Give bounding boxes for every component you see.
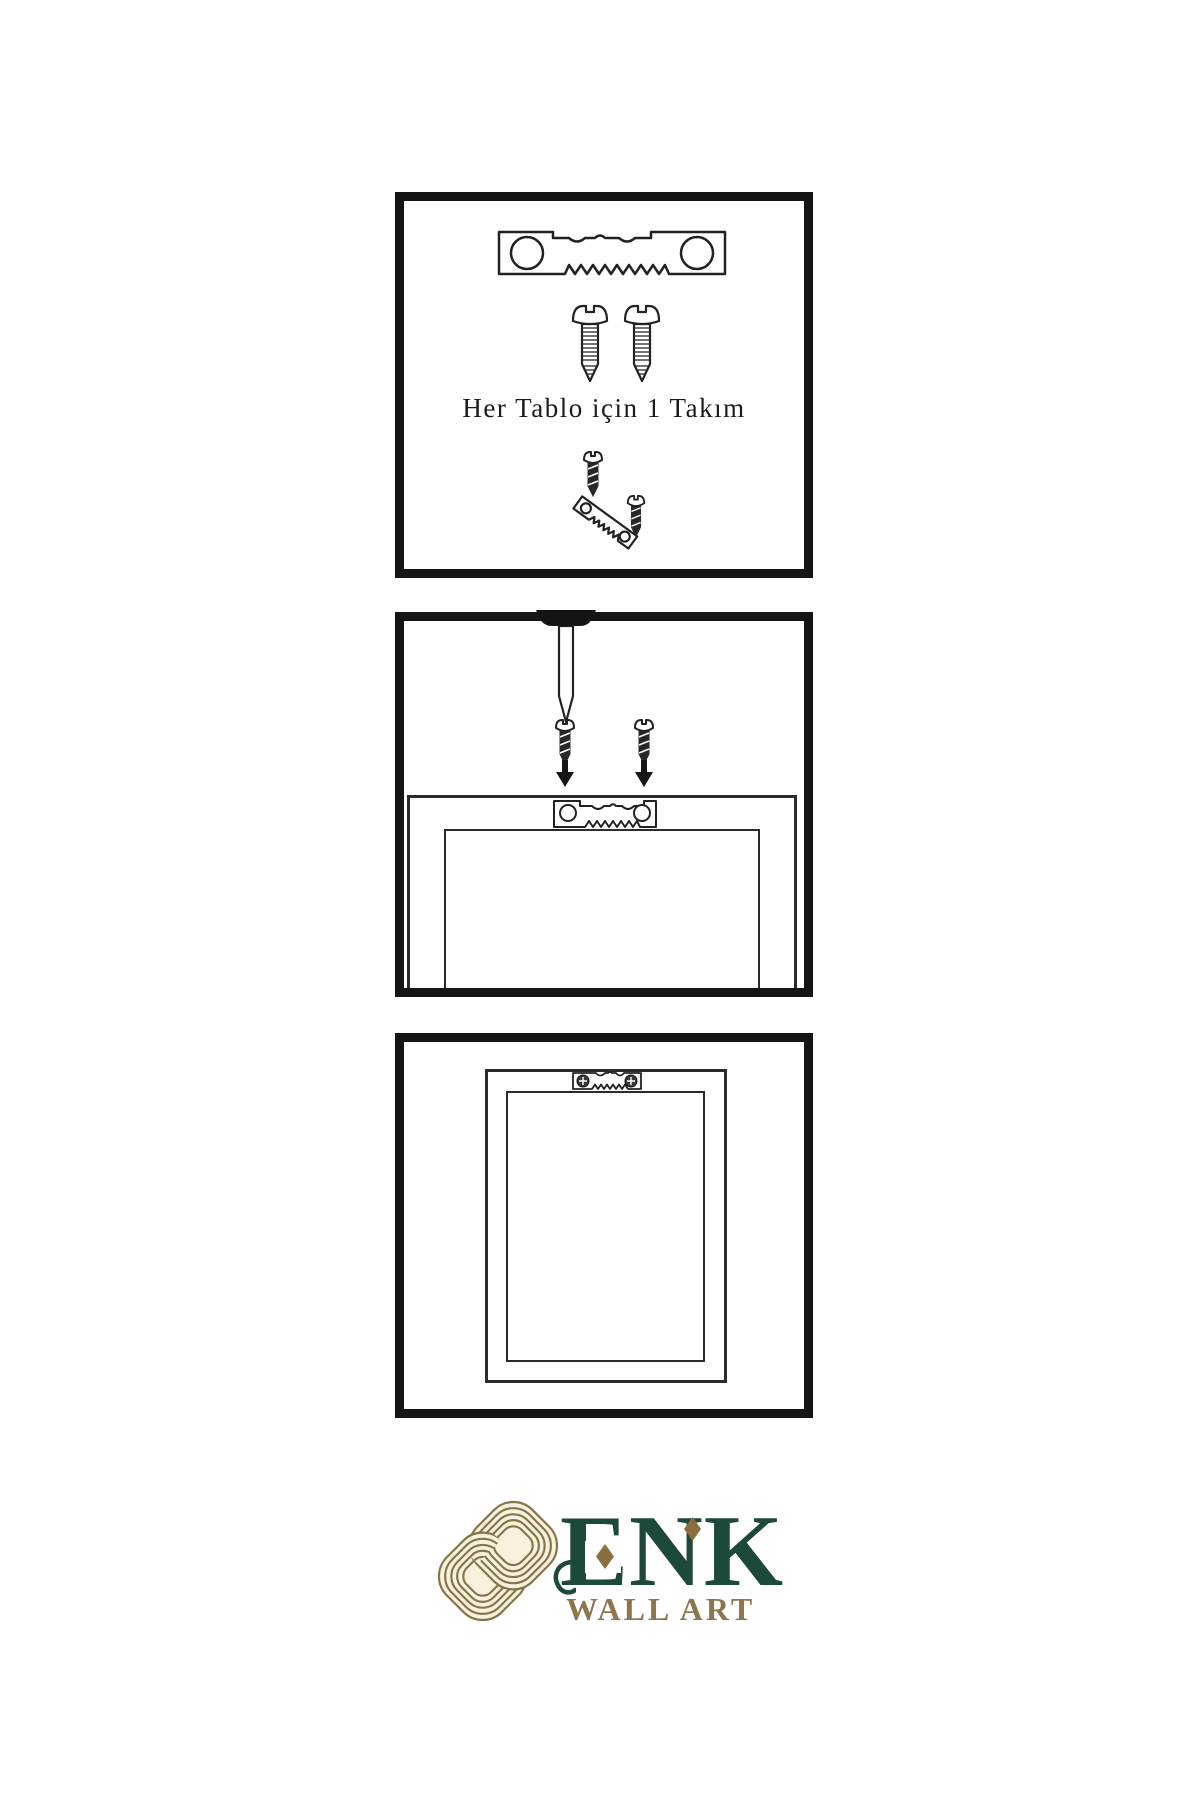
tilted-sawtooth-hanger-icon <box>570 486 662 556</box>
instruction-sheet: Her Tablo için 1 Takım <box>0 0 1200 1800</box>
dark-screw-icon <box>625 494 647 540</box>
hanging-frame-inner-edge <box>506 1091 705 1362</box>
panel1-caption: Her Tablo için 1 Takım <box>395 393 813 424</box>
sawtooth-hanger-icon <box>495 224 729 282</box>
knot-logo-icon <box>433 1490 563 1632</box>
logo-subtitle: WALL ART <box>566 1593 755 1625</box>
sawtooth-hanger-icon <box>552 797 658 831</box>
sawtooth-hanger-screwed-icon <box>572 1071 642 1091</box>
down-arrow-icon <box>635 760 653 787</box>
screw-icon <box>622 302 662 386</box>
down-arrow-icon <box>556 760 574 787</box>
screw-icon <box>570 302 610 386</box>
frame-back-inner-edge <box>444 829 760 988</box>
